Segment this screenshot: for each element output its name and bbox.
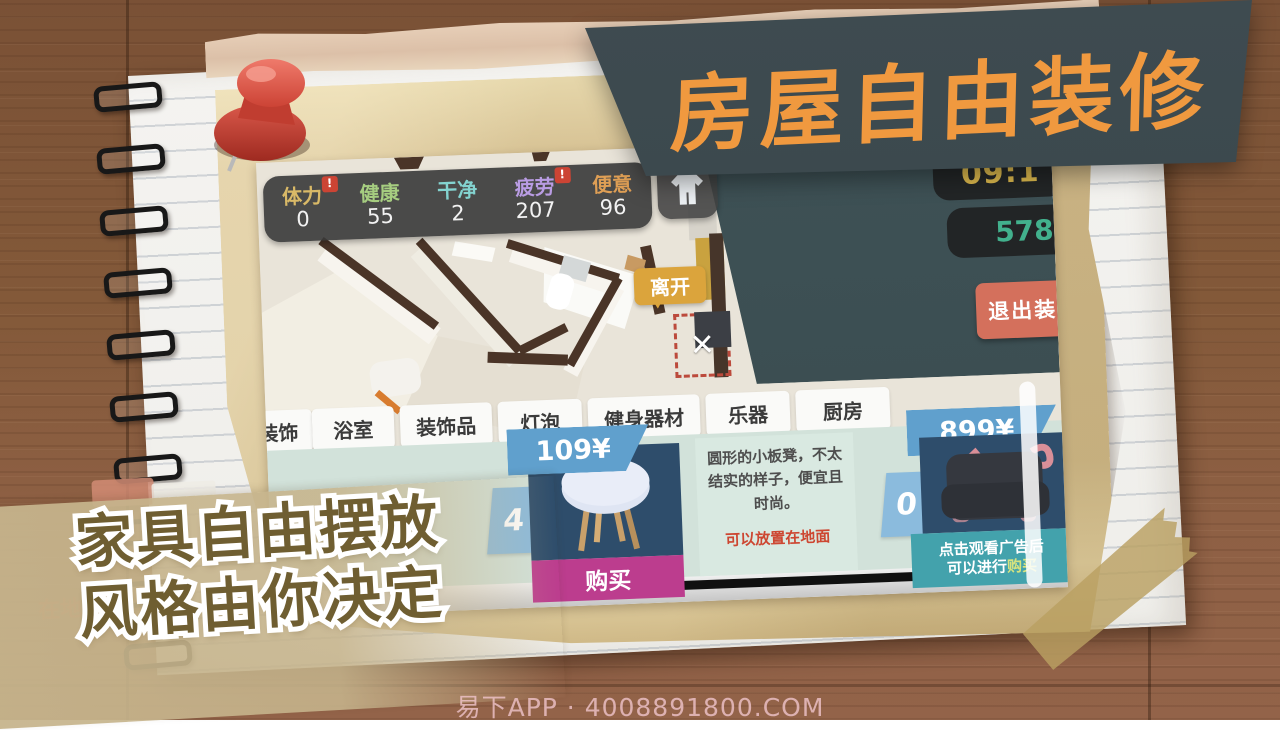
stat-health: 健康 55 bbox=[340, 171, 420, 240]
stat-fatigue: 疲劳! 207 bbox=[495, 165, 575, 234]
item-description: 圆形的小板凳，不太结实的样子，便宜且时尚。 bbox=[703, 443, 848, 518]
alert-icon: ! bbox=[554, 167, 571, 184]
stat-bowel: 便意 96 bbox=[573, 162, 653, 231]
money-display: 578 bbox=[946, 204, 1068, 259]
promo-slogan: 家具自由摆放 家具自由摆放 风格由你决定 风格由你决定 bbox=[36, 484, 484, 651]
stat-clean: 干净 2 bbox=[418, 168, 498, 237]
cancel-selection-box[interactable]: ✕ bbox=[673, 312, 731, 378]
tab-ornaments[interactable]: 装饰品 bbox=[399, 402, 493, 448]
tab-kitchen[interactable]: 厨房 bbox=[795, 387, 891, 433]
exit-decoration-button[interactable]: 退出装修 bbox=[975, 279, 1068, 340]
cancel-x-icon: ✕ bbox=[689, 327, 715, 363]
tab-bathroom[interactable]: 浴室 bbox=[311, 406, 395, 451]
item-description-panel: 圆形的小板凳，不太结实的样子，便宜且时尚。 可以放置在地面 bbox=[695, 432, 858, 576]
placement-note: 可以放置在地面 bbox=[706, 524, 849, 550]
time-display: 09:1 bbox=[932, 144, 1066, 201]
shirt-icon bbox=[669, 168, 706, 207]
watch-ad-button[interactable]: 点击观看广告后 可以进行购买 bbox=[911, 528, 1068, 588]
tab-instruments[interactable]: 乐器 bbox=[705, 391, 791, 436]
leave-bubble[interactable]: 离开 bbox=[633, 266, 706, 306]
item-image-cat-chair bbox=[919, 432, 1068, 534]
pushpin-icon bbox=[198, 45, 338, 180]
clothes-button[interactable] bbox=[656, 155, 718, 219]
shop-item-ad[interactable]: 0 899¥ 点击观看广告后 可以进行购买 bbox=[902, 404, 1068, 588]
watermark: 易下APP · 4008891800.COM bbox=[0, 688, 1280, 724]
stat-stamina: 体力! 0 bbox=[263, 174, 343, 243]
